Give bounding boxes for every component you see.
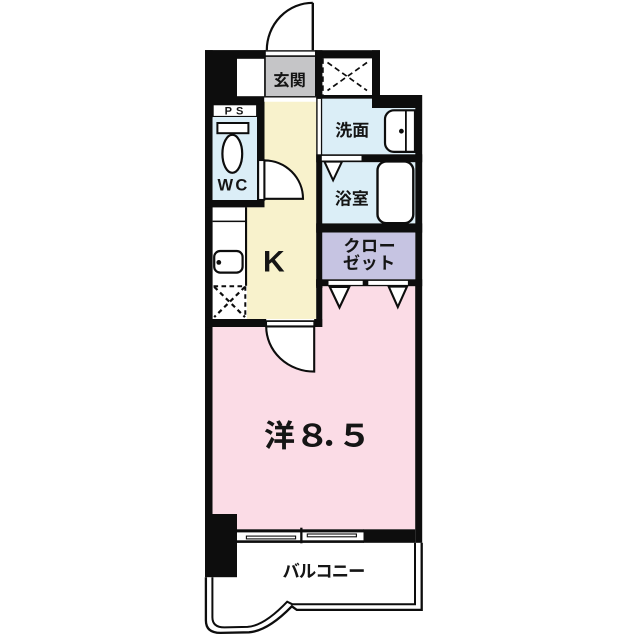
svg-text:K: K: [263, 245, 285, 278]
svg-text:PS: PS: [225, 105, 248, 117]
svg-text:WC: WC: [218, 177, 250, 195]
